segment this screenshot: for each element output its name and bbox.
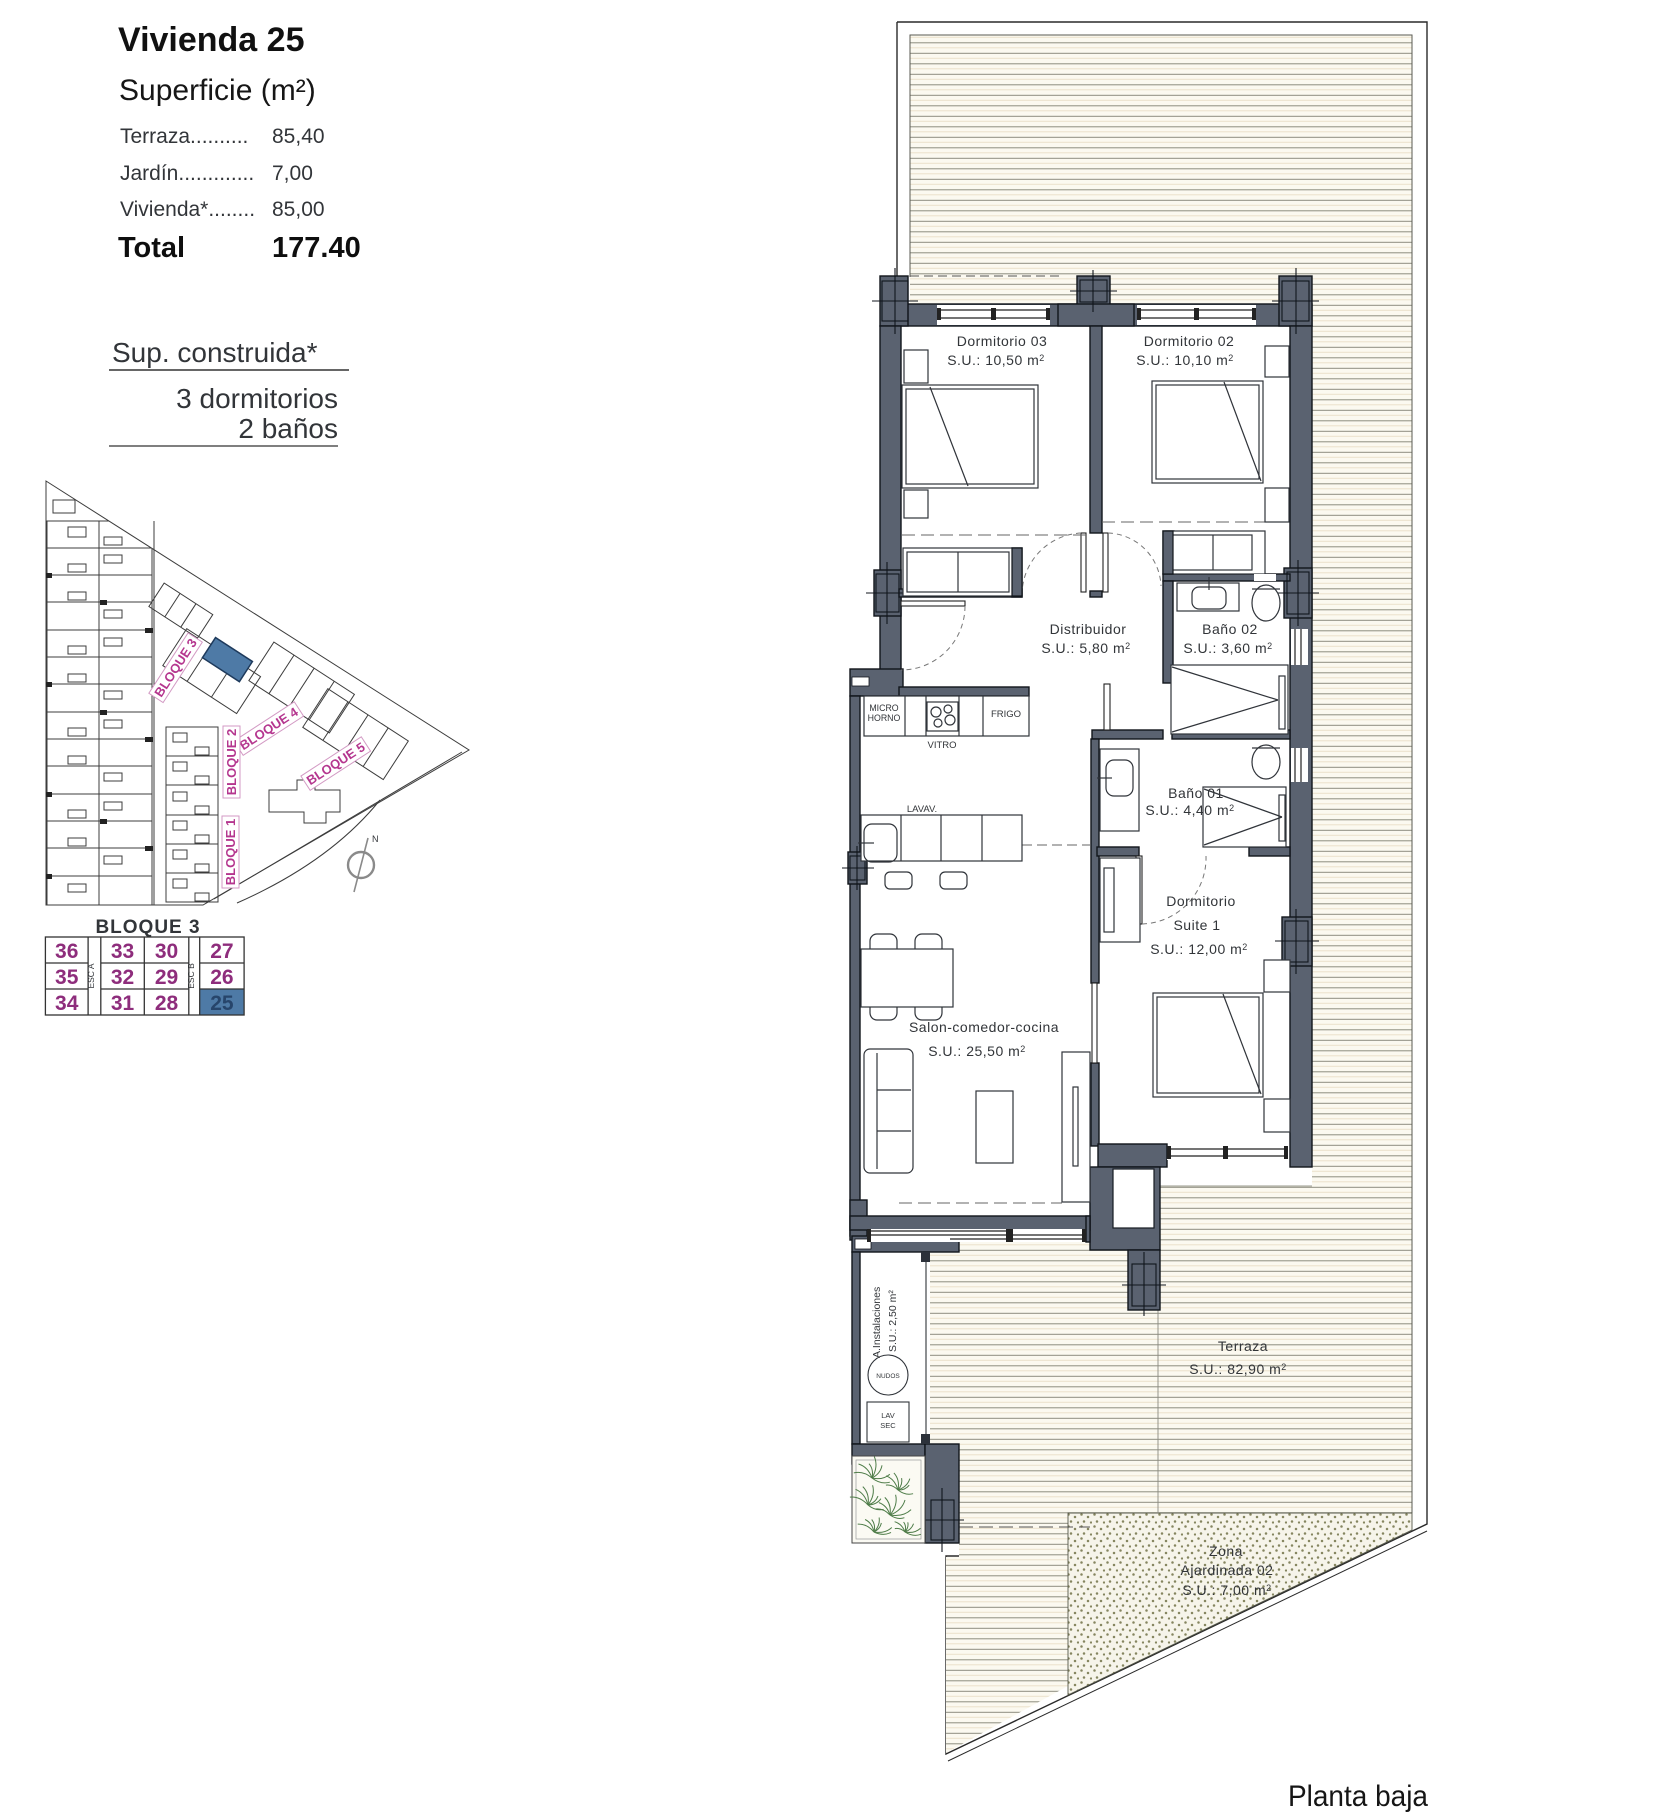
svg-text:35: 35 bbox=[55, 966, 79, 989]
svg-text:Superficie (m²): Superficie (m²) bbox=[119, 74, 316, 107]
svg-text:S.U.: 10,10 m2: S.U.: 10,10 m2 bbox=[1136, 352, 1234, 368]
svg-text:29: 29 bbox=[155, 966, 178, 989]
svg-text:Ajardinada 02: Ajardinada 02 bbox=[1181, 1562, 1274, 1578]
svg-text:SEC: SEC bbox=[880, 1421, 896, 1430]
svg-text:N: N bbox=[372, 834, 379, 844]
svg-text:S.U.: 25,50 m2: S.U.: 25,50 m2 bbox=[928, 1043, 1026, 1059]
svg-text:S.U.: 10,50 m2: S.U.: 10,50 m2 bbox=[947, 352, 1045, 368]
svg-text:HORNO: HORNO bbox=[868, 713, 901, 723]
svg-text:Vivienda 25: Vivienda 25 bbox=[118, 21, 305, 59]
svg-text:26: 26 bbox=[210, 966, 233, 989]
svg-text:85,40: 85,40 bbox=[272, 125, 325, 148]
svg-text:32: 32 bbox=[111, 966, 134, 989]
svg-text:ESC B: ESC B bbox=[186, 963, 196, 989]
svg-text:S.U.: 82,90 m2: S.U.: 82,90 m2 bbox=[1189, 1361, 1287, 1377]
svg-text:BLOQUE 4: BLOQUE 4 bbox=[237, 704, 302, 753]
svg-text:Terraza: Terraza bbox=[1218, 1338, 1268, 1354]
svg-text:NUDOS: NUDOS bbox=[876, 1373, 900, 1380]
svg-text:S.U.: 4,40 m2: S.U.: 4,40 m2 bbox=[1145, 802, 1234, 818]
svg-text:31: 31 bbox=[111, 992, 135, 1015]
svg-text:Sup. construida*: Sup. construida* bbox=[112, 337, 318, 368]
svg-text:Total: Total bbox=[118, 232, 185, 264]
svg-text:Baño 02: Baño 02 bbox=[1202, 621, 1258, 637]
svg-text:ESC A: ESC A bbox=[86, 963, 96, 988]
svg-text:Dormitorio 02: Dormitorio 02 bbox=[1144, 333, 1235, 349]
svg-text:FRIGO: FRIGO bbox=[991, 709, 1021, 720]
svg-text:Dormitorio 03: Dormitorio 03 bbox=[957, 333, 1048, 349]
svg-text:Baño 01: Baño 01 bbox=[1168, 785, 1224, 801]
svg-text:7,00: 7,00 bbox=[272, 162, 313, 185]
svg-text:Terraza..........: Terraza.......... bbox=[120, 125, 248, 148]
svg-text:3 dormitorios: 3 dormitorios bbox=[176, 383, 338, 414]
svg-text:177.40: 177.40 bbox=[272, 232, 361, 264]
svg-text:MICRO: MICRO bbox=[869, 703, 898, 713]
svg-text:28: 28 bbox=[155, 992, 179, 1015]
svg-text:A.Instalaciones: A.Instalaciones bbox=[871, 1287, 883, 1358]
svg-text:33: 33 bbox=[111, 940, 134, 963]
svg-text:VITRO: VITRO bbox=[927, 740, 956, 751]
svg-text:S.U.: 5,80 m2: S.U.: 5,80 m2 bbox=[1041, 640, 1130, 656]
svg-text:85,00: 85,00 bbox=[272, 198, 325, 221]
svg-text:BLOQUE 3: BLOQUE 3 bbox=[95, 917, 200, 938]
svg-text:27: 27 bbox=[210, 940, 233, 963]
svg-text:36: 36 bbox=[55, 940, 78, 963]
svg-text:BLOQUE 1: BLOQUE 1 bbox=[223, 819, 238, 885]
svg-text:Jardín.............: Jardín............. bbox=[120, 162, 254, 185]
svg-text:S.U.: 7,00 m2: S.U.: 7,00 m2 bbox=[1182, 1582, 1271, 1598]
svg-text:34: 34 bbox=[55, 992, 79, 1015]
svg-text:S.U.: 3,60 m2: S.U.: 3,60 m2 bbox=[1183, 640, 1272, 656]
svg-text:2 baños: 2 baños bbox=[238, 413, 338, 444]
svg-text:Distribuidor: Distribuidor bbox=[1050, 621, 1127, 637]
svg-text:Salon-comedor-cocina: Salon-comedor-cocina bbox=[909, 1019, 1059, 1035]
svg-text:Planta baja: Planta baja bbox=[1288, 1780, 1428, 1813]
svg-text:BLOQUE 2: BLOQUE 2 bbox=[224, 729, 239, 795]
svg-text:LAVAV.: LAVAV. bbox=[907, 804, 937, 815]
svg-text:Suite 1: Suite 1 bbox=[1173, 917, 1220, 933]
svg-text:S.U.: 12,00 m2: S.U.: 12,00 m2 bbox=[1150, 941, 1248, 957]
svg-text:Dormitorio: Dormitorio bbox=[1166, 893, 1236, 909]
svg-text:30: 30 bbox=[155, 940, 178, 963]
svg-text:S.U.: 2,50 m²: S.U.: 2,50 m² bbox=[887, 1290, 899, 1352]
svg-text:Zona: Zona bbox=[1209, 1543, 1243, 1559]
svg-text:LAV: LAV bbox=[881, 1411, 895, 1420]
svg-text:25: 25 bbox=[210, 992, 234, 1015]
svg-text:Vivienda*........: Vivienda*........ bbox=[120, 198, 255, 221]
